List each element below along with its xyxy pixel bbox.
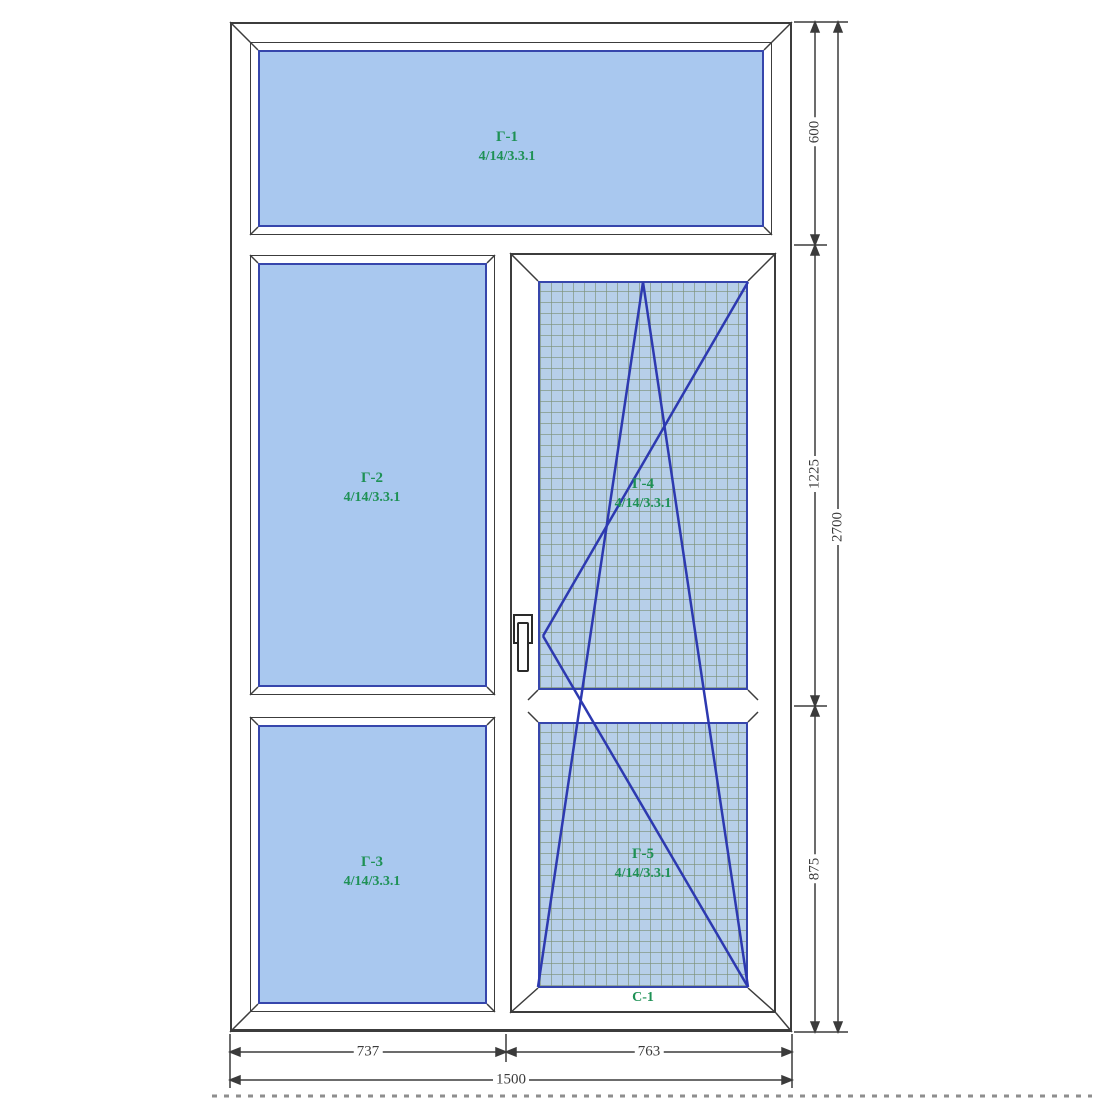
glazing-formula: 4/14/3.3.1 bbox=[344, 489, 401, 507]
dim-label-600: 600 bbox=[807, 118, 824, 147]
glazing-formula: 4/14/3.3.1 bbox=[344, 873, 401, 891]
panel-label-g3: Г-3 4/14/3.3.1 bbox=[344, 853, 401, 891]
panel-name: Г-3 bbox=[344, 853, 401, 873]
panel-label-g5: Г-5 4/14/3.3.1 bbox=[615, 845, 672, 883]
glazing-formula: 4/14/3.3.1 bbox=[615, 865, 672, 883]
panel-name: Г-5 bbox=[615, 845, 672, 865]
dim-label-737: 737 bbox=[354, 1044, 383, 1061]
door-handle bbox=[517, 622, 529, 672]
panel-name: Г-1 bbox=[479, 128, 536, 148]
glazing-formula: 4/14/3.3.1 bbox=[479, 148, 536, 166]
panel-label-g2: Г-2 4/14/3.3.1 bbox=[344, 469, 401, 507]
dim-label-1500: 1500 bbox=[493, 1072, 529, 1089]
dim-label-875: 875 bbox=[807, 855, 824, 884]
panel-label-g4: Г-4 4/14/3.3.1 bbox=[615, 475, 672, 513]
glazing-formula: 4/14/3.3.1 bbox=[615, 495, 672, 513]
panel-label-g1: Г-1 4/14/3.3.1 bbox=[479, 128, 536, 166]
dim-label-1225: 1225 bbox=[807, 456, 824, 492]
panel-name: Г-4 bbox=[615, 475, 672, 495]
panel-name: Г-2 bbox=[344, 469, 401, 489]
dim-label-2700: 2700 bbox=[830, 509, 847, 545]
dim-label-763: 763 bbox=[635, 1044, 664, 1061]
sash-label: С-1 bbox=[632, 990, 654, 1006]
window-drawing-canvas: Г-1 4/14/3.3.1 Г-2 4/14/3.3.1 Г-3 4/14/3… bbox=[0, 0, 1100, 1100]
